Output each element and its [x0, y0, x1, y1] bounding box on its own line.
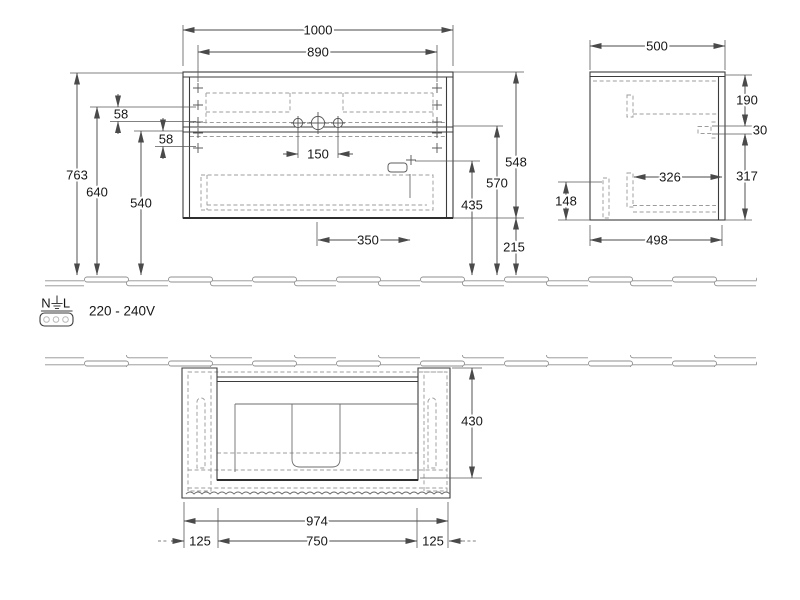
- front-extension-lines: [70, 25, 524, 246]
- electrical-connection: N L 220 - 240V: [40, 296, 155, 327]
- dim-upper-rail: 640: [86, 185, 108, 200]
- wall-line-plan: [45, 355, 757, 367]
- dim-bracket-height: 148: [555, 194, 577, 209]
- floor-line-front: [45, 275, 757, 287]
- dim-carcass-height: 548: [505, 155, 527, 170]
- cabinet-outline: [183, 72, 453, 218]
- dim-clearance: 215: [503, 240, 525, 255]
- dim-carcass-width: 974: [306, 514, 328, 529]
- terminal-n-label: N: [41, 296, 50, 311]
- dim-gap-lower: 58: [159, 132, 173, 147]
- dim-basin-edge: 30: [753, 123, 767, 138]
- voltage-label: 220 - 240V: [89, 304, 155, 319]
- outlet-box: [388, 163, 407, 172]
- dim-installation-depth: 430: [461, 414, 483, 429]
- vanity-technical-drawing: 1000 890 763 640 540 58 58 150 350 548 5…: [0, 0, 800, 600]
- dim-inner-width: 750: [306, 534, 328, 549]
- dim-tap-spacing: 150: [307, 147, 329, 162]
- terminal-l-label: L: [63, 296, 70, 311]
- dim-lower-section: 317: [736, 169, 758, 184]
- dim-overall-width: 1000: [304, 23, 333, 38]
- dim-lower-rail: 540: [130, 196, 152, 211]
- side-outline: [590, 72, 725, 220]
- dim-carcass-depth: 498: [646, 233, 668, 248]
- earth-ground-icon: [52, 296, 62, 309]
- side-extension-lines: [558, 40, 760, 246]
- plan-inner-lines: [235, 404, 418, 472]
- faucet-holes-icon: [291, 112, 345, 134]
- terminal-hole-icon: [53, 317, 59, 323]
- plan-view: 430 974 750 125 125: [158, 368, 483, 549]
- dim-drain-offset: 350: [357, 233, 379, 248]
- dim-offset-right: 125: [422, 534, 444, 549]
- side-inner-dashed: [593, 81, 718, 218]
- basin-outline: [292, 404, 340, 467]
- terminal-hole-icon: [63, 317, 69, 323]
- dim-basin-height: 570: [486, 176, 508, 191]
- side-panels: [590, 77, 725, 221]
- technical-drawing-page: 1000 890 763 640 540 58 58 150 350 548 5…: [0, 0, 800, 600]
- dim-overall-height: 763: [66, 168, 88, 183]
- dim-inner-depth: 326: [659, 170, 681, 185]
- plan-outline: [182, 368, 450, 498]
- dim-mounting-width: 890: [307, 45, 329, 60]
- side-view: 500 190 30 317 326 148 498: [555, 39, 767, 248]
- dim-overall-depth: 500: [646, 39, 668, 54]
- terminal-hole-icon: [44, 317, 50, 323]
- plan-inner-dashed: [188, 372, 447, 491]
- front-view: 1000 890 763 640 540 58 58 150 350 548 5…: [66, 23, 527, 276]
- plan-scallop-line: [186, 492, 450, 494]
- dim-outlet-height: 435: [461, 198, 483, 213]
- dim-top-section: 190: [736, 93, 758, 108]
- dim-offset-left: 125: [189, 534, 211, 549]
- dim-gap-upper: 58: [114, 107, 128, 122]
